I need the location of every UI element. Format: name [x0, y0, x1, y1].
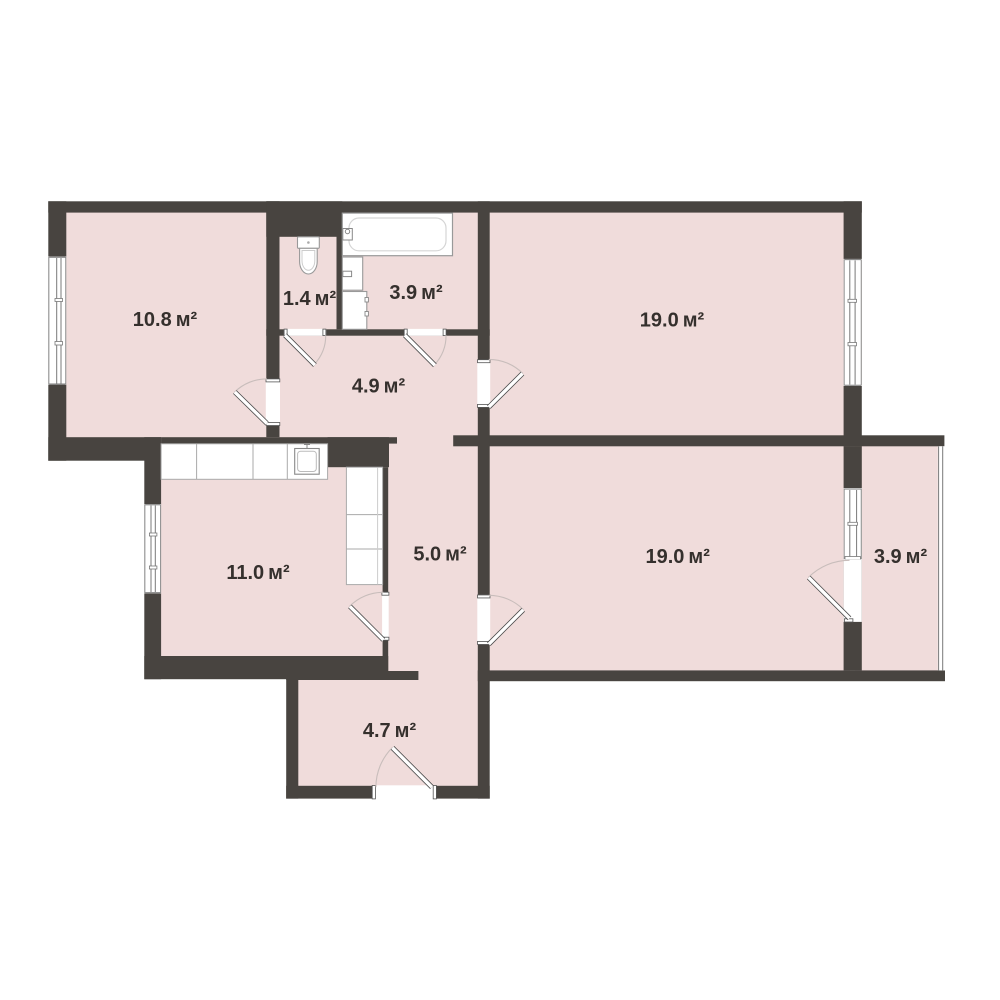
svg-text:1.4 м²: 1.4 м²: [283, 288, 337, 310]
svg-text:3.9 м²: 3.9 м²: [389, 282, 443, 304]
svg-text:19.0 м²: 19.0 м²: [646, 546, 711, 568]
svg-text:10.8 м²: 10.8 м²: [133, 309, 198, 331]
svg-text:3.9 м²: 3.9 м²: [874, 546, 928, 568]
svg-text:11.0 м²: 11.0 м²: [226, 562, 290, 584]
svg-text:4.9 м²: 4.9 м²: [352, 376, 406, 398]
svg-text:5.0 м²: 5.0 м²: [413, 544, 467, 566]
svg-text:19.0 м²: 19.0 м²: [640, 310, 705, 332]
svg-text:4.7 м²: 4.7 м²: [363, 720, 417, 742]
